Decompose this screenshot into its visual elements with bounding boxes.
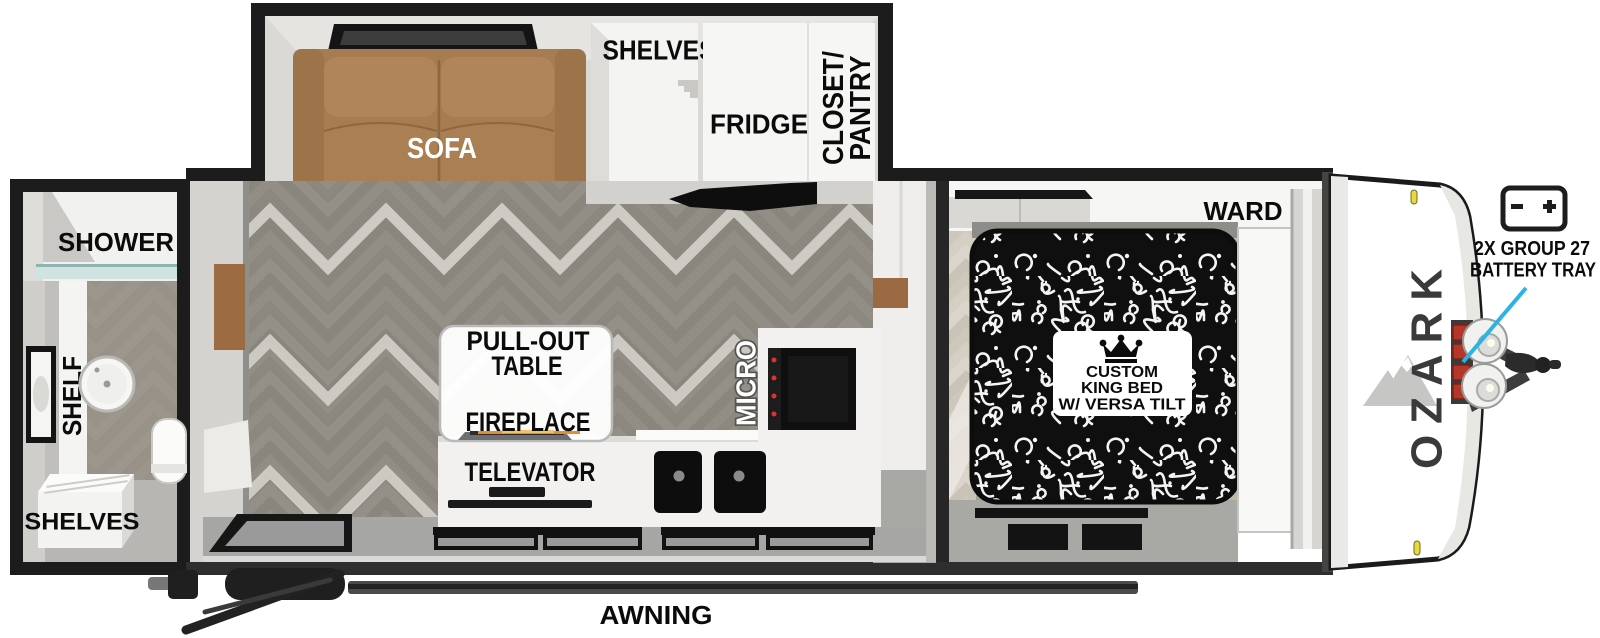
svg-text:SOFA: SOFA (407, 133, 477, 165)
svg-text:SHELVES: SHELVES (25, 509, 140, 536)
svg-text:SHOWER: SHOWER (58, 227, 174, 257)
svg-text:SHELVES: SHELVES (603, 35, 716, 66)
svg-text:MICRO: MICRO (731, 340, 762, 426)
svg-text:WARD: WARD (1204, 196, 1283, 226)
svg-text:FIREPLACE: FIREPLACE (466, 407, 591, 437)
svg-text:KING BED: KING BED (1081, 380, 1163, 397)
svg-text:FRIDGE: FRIDGE (710, 109, 808, 140)
svg-text:PANTRY: PANTRY (845, 56, 877, 161)
svg-text:TELEVATOR: TELEVATOR (465, 457, 596, 487)
svg-text:TABLE: TABLE (492, 351, 563, 381)
svg-text:OZARK: OZARK (1403, 269, 1452, 469)
svg-text:AWNING: AWNING (600, 600, 713, 630)
svg-text:2X GROUP 27: 2X GROUP 27 (1474, 238, 1590, 260)
svg-text:W/ VERSA TILT: W/ VERSA TILT (1059, 397, 1186, 414)
svg-text:BATTERY TRAY: BATTERY TRAY (1470, 260, 1597, 282)
svg-text:CUSTOM: CUSTOM (1086, 364, 1158, 381)
